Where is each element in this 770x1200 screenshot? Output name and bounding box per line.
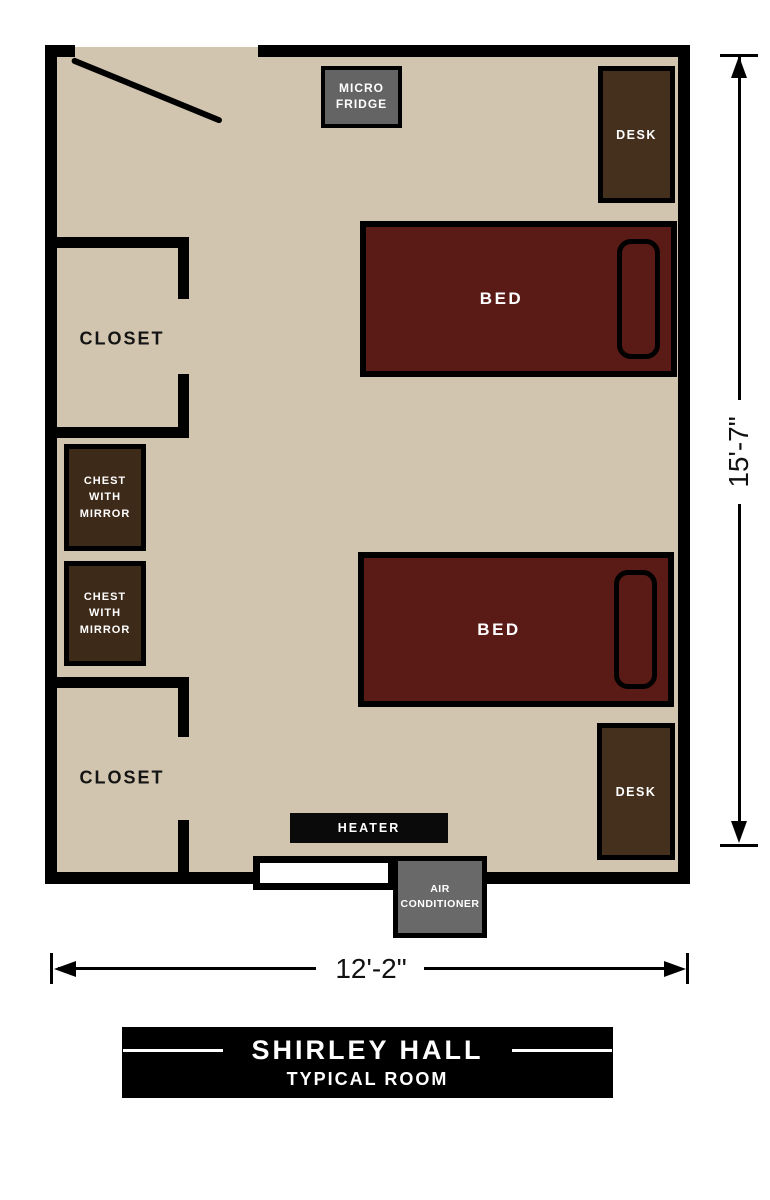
desk-top: DESK xyxy=(598,66,675,203)
title-subtitle: TYPICAL ROOM xyxy=(287,1069,449,1090)
horizontal-dimension-tick-left xyxy=(50,953,53,984)
desk-top-label: DESK xyxy=(616,128,657,142)
horizontal-dimension-tick-right xyxy=(686,953,689,984)
chest-upper-label: CHEST WITH MIRROR xyxy=(73,473,137,523)
floor-plan-canvas: CLOSET CLOSET MICRO FRIDGE DESK BED CHES… xyxy=(0,0,770,1200)
title-block: SHIRLEY HALL TYPICAL ROOM xyxy=(122,1027,613,1098)
closet-top-label: CLOSET xyxy=(79,329,164,350)
wall-top xyxy=(258,45,690,57)
closet-bottom-wall-right-upper xyxy=(178,677,189,737)
arrow-down-icon xyxy=(731,821,747,843)
bed-top: BED xyxy=(360,221,677,377)
closet-top-wall-right-lower xyxy=(178,374,189,438)
chest-lower-label: CHEST WITH MIRROR xyxy=(73,589,137,639)
wall-right xyxy=(678,45,690,884)
heater: HEATER xyxy=(290,813,448,843)
horizontal-dimension-line-left xyxy=(58,967,316,970)
closet-top-wall-top xyxy=(57,237,189,248)
chest-with-mirror-lower: CHEST WITH MIRROR xyxy=(64,561,146,666)
closet-bottom-label: CLOSET xyxy=(79,768,164,789)
bed-top-pillow xyxy=(617,239,660,359)
micro-fridge-label: MICRO FRIDGE xyxy=(325,81,398,112)
closet-bottom-wall-top xyxy=(57,677,189,688)
room-floor xyxy=(57,57,678,872)
room-width-dimension: 12'-2" xyxy=(335,953,406,985)
arrow-up-icon xyxy=(731,56,747,78)
closet-top-wall-right-upper xyxy=(178,237,189,299)
arrow-right-icon xyxy=(664,961,686,977)
wall-left xyxy=(45,45,57,884)
air-conditioner: AIR CONDITIONER xyxy=(393,856,487,938)
title-decorative-line-right xyxy=(512,1049,612,1052)
desk-bottom-label: DESK xyxy=(616,785,657,799)
hall-name: SHIRLEY HALL xyxy=(251,1035,483,1066)
title-decorative-line-left xyxy=(123,1049,223,1052)
micro-fridge: MICRO FRIDGE xyxy=(321,66,402,128)
vertical-dimension-line-upper xyxy=(738,57,741,400)
title-row: SHIRLEY HALL xyxy=(123,1035,611,1066)
closet-bottom-wall-right-lower xyxy=(178,820,189,872)
wall-top-stub xyxy=(45,45,75,57)
chest-with-mirror-upper: CHEST WITH MIRROR xyxy=(64,444,146,551)
vertical-dimension-tick-bottom xyxy=(720,844,758,847)
door-opening-floor xyxy=(75,47,258,57)
bed-bottom-pillow xyxy=(614,570,657,689)
room-height-dimension: 15'-7" xyxy=(723,416,755,487)
horizontal-dimension-line-right xyxy=(424,967,664,970)
window-vent xyxy=(253,856,395,890)
arrow-left-icon xyxy=(54,961,76,977)
vertical-dimension-line-lower xyxy=(738,504,741,838)
air-conditioner-label: AIR CONDITIONER xyxy=(401,882,480,911)
bed-top-label: BED xyxy=(480,289,557,309)
bed-bottom-label: BED xyxy=(477,620,554,640)
closet-top-wall-bottom xyxy=(57,427,189,438)
bed-bottom: BED xyxy=(358,552,674,707)
desk-bottom: DESK xyxy=(597,723,675,860)
heater-label: HEATER xyxy=(338,821,400,835)
